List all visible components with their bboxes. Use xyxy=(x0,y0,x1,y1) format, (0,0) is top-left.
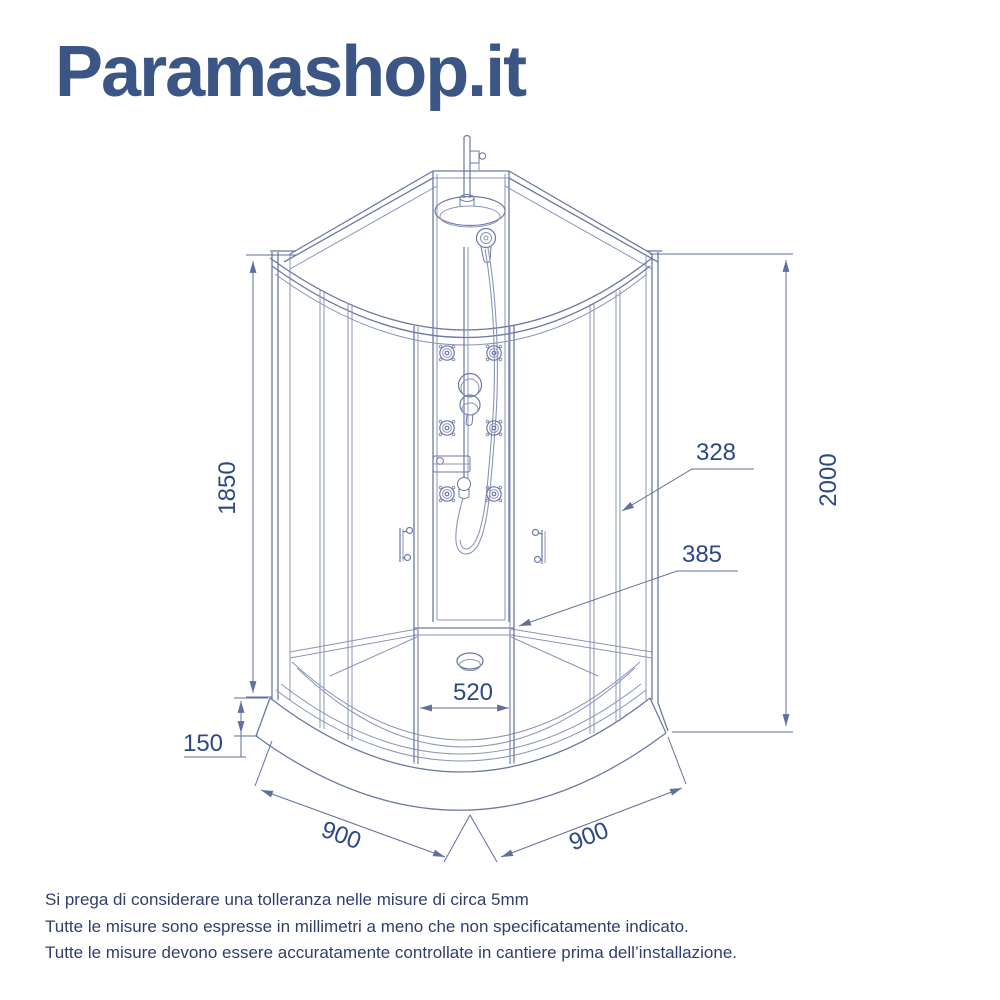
dim-385 xyxy=(519,571,738,626)
dim-2000 xyxy=(650,254,793,732)
dim-label-520: 520 xyxy=(453,679,493,707)
dim-328 xyxy=(622,469,754,511)
dim-label-328: 328 xyxy=(696,439,736,467)
dim-1850 xyxy=(246,255,296,697)
dim-label-1850: 1850 xyxy=(214,461,242,514)
back-walls xyxy=(270,171,668,731)
dim-label-2000: 2000 xyxy=(815,453,843,506)
dim-label-150: 150 xyxy=(183,730,223,758)
page: Paramashop.it xyxy=(0,0,1000,1000)
note-line: Tutte le misure sono espresse in millime… xyxy=(45,914,737,941)
shower-tray xyxy=(256,628,666,810)
left-door-handle xyxy=(400,528,413,563)
shower-cabin-technical-drawing: 1850 150 2000 328 385 520 900 900 xyxy=(0,0,1000,1000)
dim-label-385: 385 xyxy=(682,541,722,569)
line-art xyxy=(0,0,1000,1000)
note-line: Tutte le misure devono essere accuratame… xyxy=(45,940,737,967)
dim-900-left xyxy=(255,741,470,862)
disclaimer-notes: Si prega di considerare una tolleranza n… xyxy=(45,887,737,967)
hydromassage-jets xyxy=(439,345,502,502)
right-door-handle xyxy=(533,530,546,565)
note-line: Si prega di considerare una tolleranza n… xyxy=(45,887,737,914)
